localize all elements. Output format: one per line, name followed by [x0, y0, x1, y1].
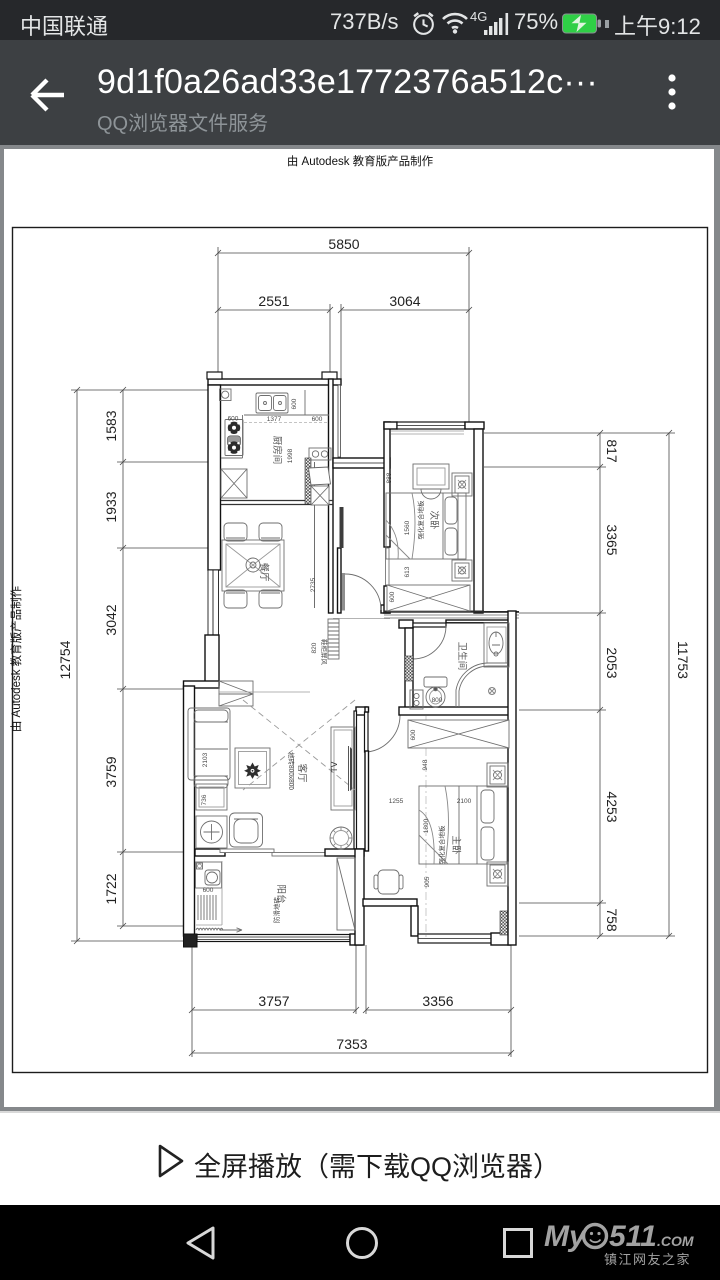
svg-text:主卧: 主卧	[450, 835, 462, 855]
svg-text:758: 758	[604, 908, 620, 932]
svg-text:600: 600	[410, 729, 417, 740]
svg-text:次卧: 次卧	[428, 510, 440, 530]
svg-text:2100: 2100	[457, 798, 472, 805]
svg-text:600: 600	[203, 887, 214, 894]
svg-text:800: 800	[432, 697, 443, 704]
svg-text:11753: 11753	[675, 641, 691, 679]
svg-text:1800: 1800	[423, 818, 430, 833]
svg-text:2053: 2053	[604, 647, 620, 678]
svg-text:600: 600	[389, 591, 396, 602]
svg-text:镇江网友之家: 镇江网友之家	[604, 1252, 691, 1267]
svg-text:905: 905	[424, 876, 431, 887]
svg-text:客厅: 客厅	[296, 763, 308, 783]
svg-text:600: 600	[228, 416, 239, 423]
svg-text:600: 600	[312, 416, 323, 423]
svg-text:12754: 12754	[57, 640, 73, 679]
svg-text:2551: 2551	[258, 293, 289, 309]
svg-text:厨房间: 厨房间	[271, 436, 283, 465]
svg-text:1998: 1998	[287, 448, 294, 463]
svg-text:7353: 7353	[336, 1036, 367, 1052]
svg-text:1255: 1255	[389, 798, 404, 805]
svg-text:My: My	[544, 1220, 587, 1253]
svg-text:3759: 3759	[103, 756, 119, 787]
svg-text:888: 888	[386, 472, 393, 483]
svg-text:1377: 1377	[267, 416, 282, 423]
svg-text:1933: 1933	[103, 491, 119, 522]
svg-text:强化复合地板: 强化复合地板	[416, 500, 425, 540]
svg-text:防滑地砖: 防滑地砖	[272, 897, 281, 924]
svg-text:4253: 4253	[604, 791, 620, 822]
svg-text:1560: 1560	[404, 520, 411, 535]
svg-text:TV: TV	[329, 761, 339, 772]
svg-text:1583: 1583	[103, 410, 119, 441]
svg-text:由 Autodesk 教育版产品制作: 由 Autodesk 教育版产品制作	[287, 154, 434, 168]
svg-text:1722: 1722	[103, 873, 119, 904]
svg-text:5850: 5850	[328, 236, 359, 252]
svg-text:817: 817	[604, 439, 620, 463]
svg-text:地砖800x800: 地砖800x800	[287, 752, 296, 790]
svg-text:.COM: .COM	[657, 1233, 694, 1249]
svg-text:由 Autodesk 教育版产品制作: 由 Autodesk 教育版产品制作	[9, 585, 23, 732]
svg-text:613: 613	[404, 566, 411, 577]
svg-text:3042: 3042	[103, 604, 119, 635]
svg-text:3356: 3356	[422, 993, 453, 1009]
svg-text:948: 948	[422, 759, 429, 770]
svg-text:2735: 2735	[310, 577, 317, 592]
svg-text:3757: 3757	[258, 993, 289, 1009]
svg-text:3365: 3365	[604, 524, 620, 555]
svg-text:3064: 3064	[389, 293, 420, 309]
svg-text:4G: 4G	[470, 9, 487, 24]
svg-text:卫生间: 卫生间	[456, 642, 468, 671]
svg-text:强化复合地板: 强化复合地板	[437, 825, 446, 865]
svg-text:511: 511	[609, 1220, 657, 1253]
svg-text:736: 736	[201, 794, 208, 805]
svg-text:餐厅: 餐厅	[258, 562, 270, 582]
svg-text:2103: 2103	[202, 752, 209, 767]
svg-text:600: 600	[291, 398, 298, 409]
svg-text:820: 820	[311, 642, 318, 653]
